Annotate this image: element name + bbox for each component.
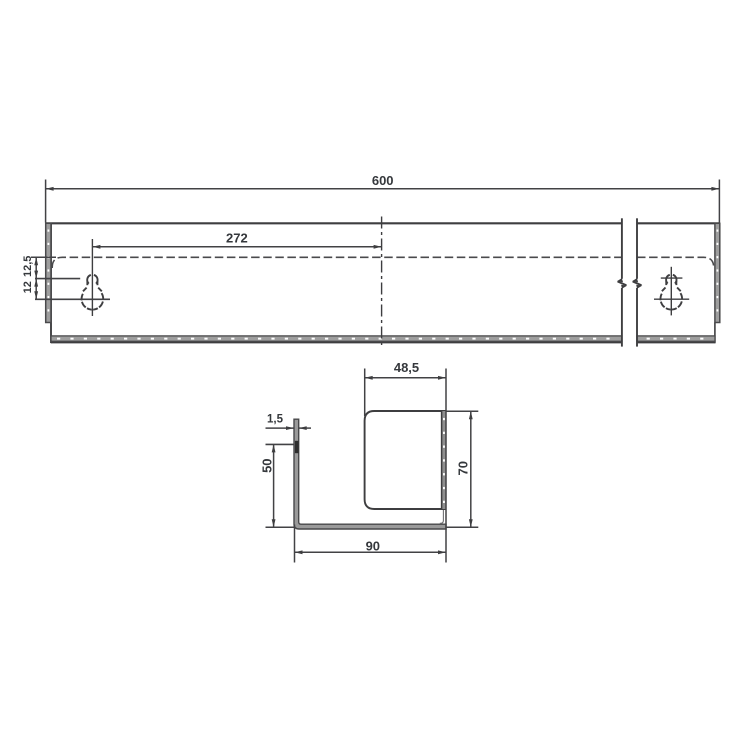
svg-text:272: 272 bbox=[226, 230, 248, 245]
svg-text:600: 600 bbox=[372, 173, 394, 188]
svg-text:90: 90 bbox=[366, 539, 380, 554]
svg-text:50: 50 bbox=[260, 458, 275, 472]
svg-text:12: 12 bbox=[22, 281, 34, 293]
svg-text:48,5: 48,5 bbox=[394, 360, 419, 375]
svg-text:12,5: 12,5 bbox=[22, 256, 34, 277]
svg-text:70: 70 bbox=[455, 461, 470, 475]
svg-text:1,5: 1,5 bbox=[267, 413, 284, 425]
